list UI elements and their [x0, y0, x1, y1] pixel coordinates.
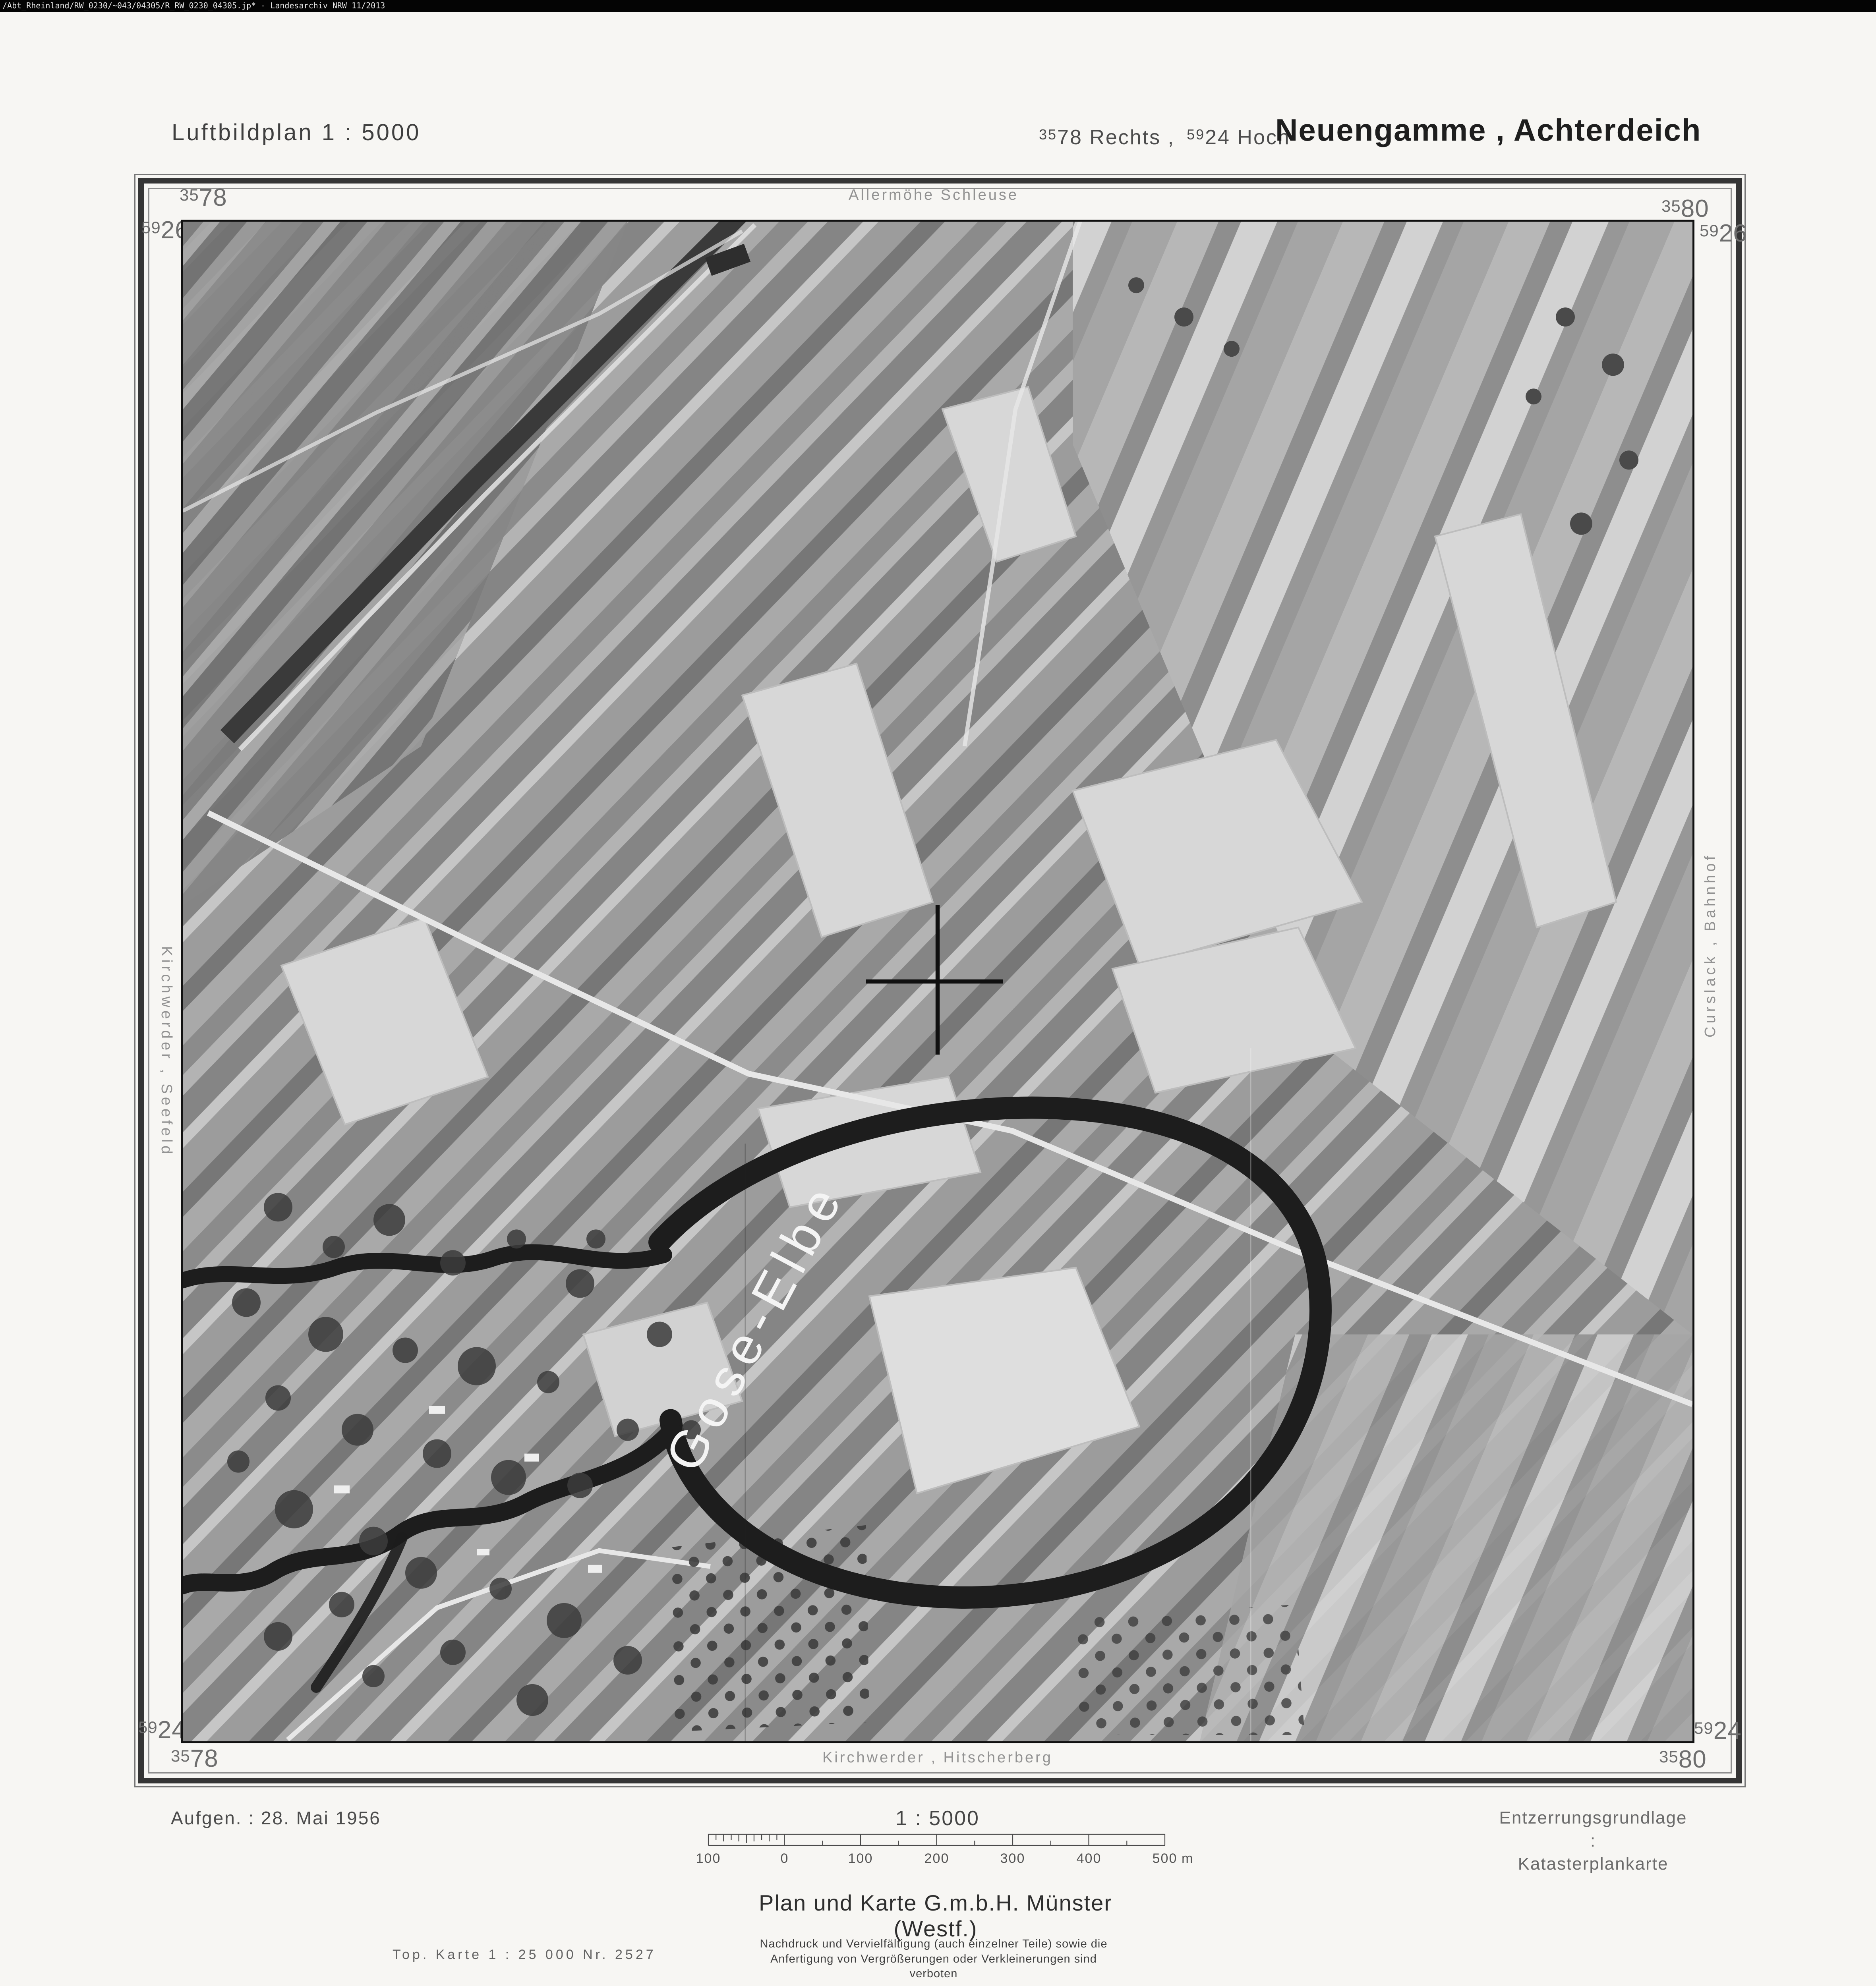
edge-label-left: Kirchwerder , Seefeld — [158, 946, 175, 1157]
map-type-title: Luftbildplan 1 : 5000 — [172, 119, 421, 146]
scale-tick-label: 100 — [696, 1851, 721, 1866]
coord-top-left-x: 3578 — [180, 184, 227, 212]
aerial-photo: Gose-Elbe — [181, 220, 1694, 1743]
aerial-photo-svg: Gose-Elbe — [183, 222, 1692, 1741]
grid-hoch-sup: 59 — [1187, 126, 1205, 143]
scale-tick-label: 200 — [924, 1851, 950, 1866]
grid-reference: 3578 Rechts ,5924 Hoch — [1039, 126, 1290, 149]
survey-date: Aufgen. : 28. Mai 1956 — [171, 1807, 381, 1829]
scale-bar-svg — [705, 1832, 1168, 1848]
coord-bottom-right-x: 3580 — [1659, 1745, 1707, 1773]
edge-label-right: Curslack , Bahnhof — [1702, 853, 1719, 1037]
coord-top-right-x: 3580 — [1661, 195, 1709, 223]
scale-tick-label: 400 — [1077, 1851, 1102, 1866]
scale-unit-label: m — [1182, 1851, 1193, 1866]
scale-ratio: 1 : 5000 — [874, 1806, 1001, 1830]
topo-map-reference: Top. Karte 1 : 25 000 Nr. 2527 — [393, 1947, 656, 1963]
edge-label-top: Allermöhe Schleuse — [803, 187, 1065, 204]
edge-label-bottom: Kirchwerder , Hitscherberg — [803, 1749, 1073, 1766]
scale-tick-label: 100 — [848, 1851, 873, 1866]
publisher-imprint: Plan und Karte G.m.b.H. Münster (Westf.) — [737, 1890, 1134, 1942]
grid-rechts-sup: 35 — [1039, 126, 1057, 143]
scale-tick-label: 500 — [1153, 1851, 1178, 1866]
scale-tick-label: 300 — [1000, 1851, 1025, 1866]
scale-bar-lines — [708, 1834, 1165, 1845]
copyright-note: Nachdruck und Vervielfältigung (auch ein… — [753, 1937, 1114, 1982]
scale-bar — [705, 1832, 1168, 1848]
copyright-line2: Anfertigung von Vergrößerungen oder Verk… — [753, 1952, 1114, 1982]
sheet-title: Neuengamme , Achterdeich — [1275, 112, 1696, 148]
coord-top-right-y: 5926 — [1700, 219, 1747, 247]
viewer-titlebar: /Abt_Rheinland/RW_0230/~043/04305/R_RW_0… — [0, 0, 1876, 12]
coord-bottom-right-y: 5924 — [1694, 1717, 1742, 1745]
orchard-south — [1073, 1605, 1305, 1735]
coord-bottom-left-y: 5924 — [138, 1716, 186, 1744]
scale-tick-label: 0 — [781, 1851, 789, 1866]
copyright-line1: Nachdruck und Vervielfältigung (auch ein… — [753, 1937, 1114, 1952]
rectification-note: Entzerrungsgrundlage : Katasterplankarte — [1494, 1806, 1692, 1876]
file-path-text: /Abt_Rheinland/RW_0230/~043/04305/R_RW_0… — [2, 1, 385, 10]
rectification-line1: Entzerrungsgrundlage : — [1494, 1806, 1692, 1853]
grid-rechts: 78 Rechts , — [1057, 126, 1175, 149]
coord-bottom-left-x: 3578 — [171, 1745, 219, 1773]
rectification-line2: Katasterplankarte — [1494, 1853, 1692, 1876]
